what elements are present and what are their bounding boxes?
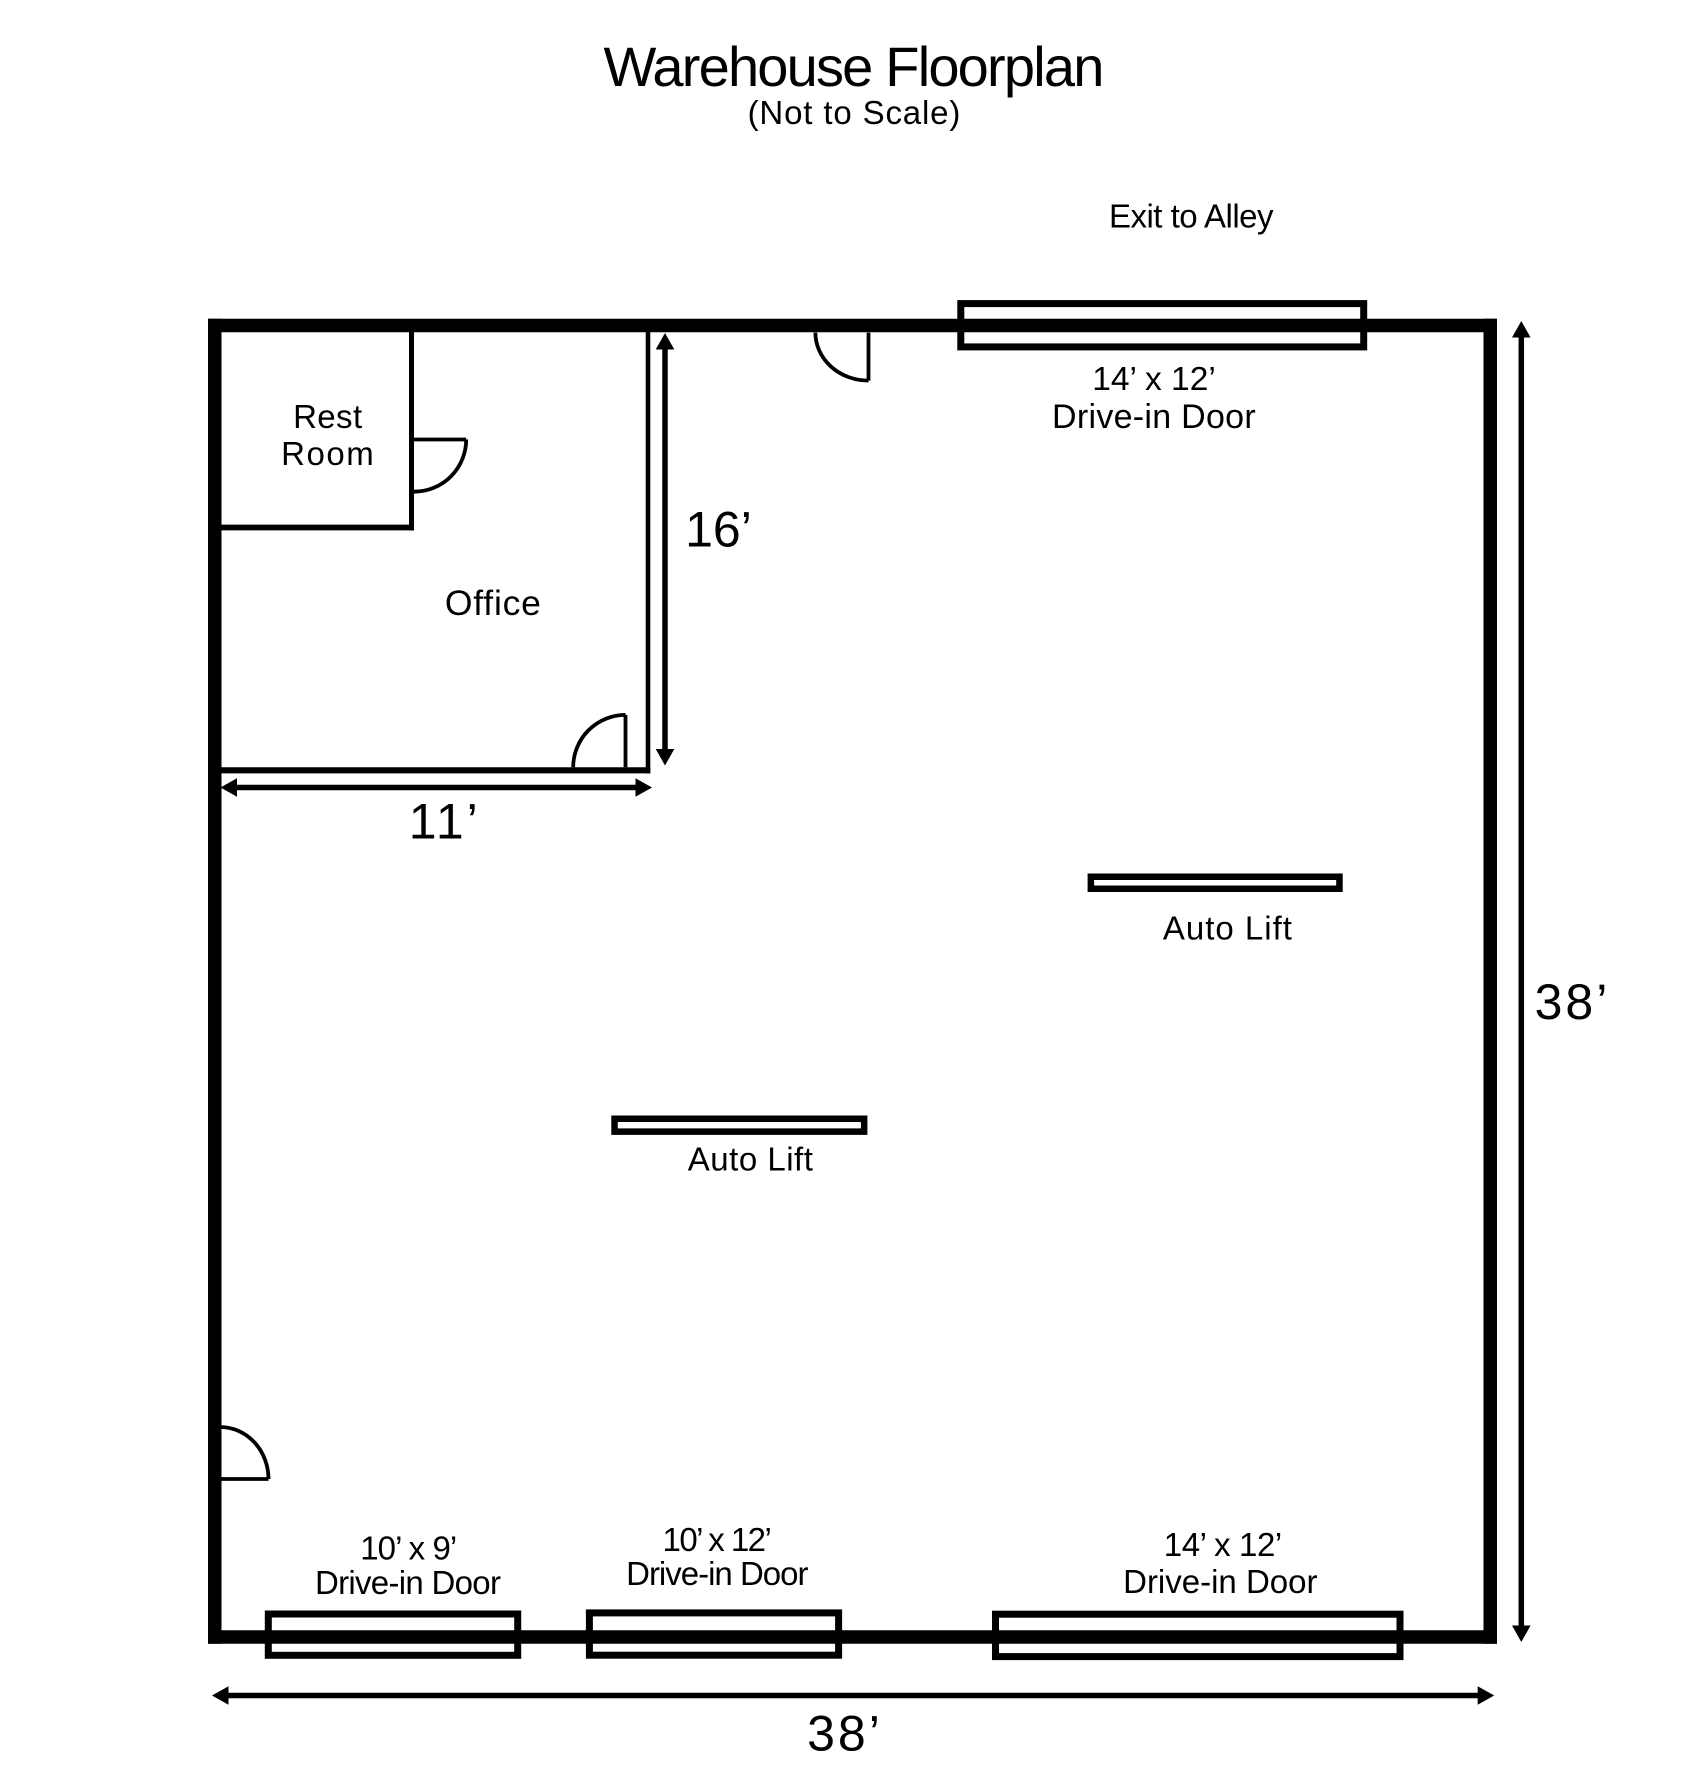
svg-text:Drive-in Door: Drive-in Door [315, 1564, 501, 1601]
svg-text:11’: 11’ [409, 793, 481, 849]
svg-text:Auto Lift: Auto Lift [1163, 909, 1293, 946]
svg-text:Auto Lift: Auto Lift [688, 1140, 814, 1177]
svg-text:16’: 16’ [685, 502, 752, 558]
svg-text:Room: Room [281, 435, 375, 472]
svg-text:Drive-in Door: Drive-in Door [1052, 398, 1256, 436]
svg-text:10’ x 9’: 10’ x 9’ [360, 1530, 456, 1567]
svg-text:(Not to Scale): (Not to Scale) [748, 94, 962, 131]
svg-text:Exit to Alley: Exit to Alley [1109, 197, 1274, 234]
svg-text:Drive-in Door: Drive-in Door [626, 1555, 808, 1592]
svg-text:14’ x 12’: 14’ x 12’ [1164, 1526, 1282, 1563]
svg-text:Drive-in Door: Drive-in Door [1123, 1563, 1317, 1600]
svg-text:Rest: Rest [293, 398, 362, 435]
svg-text:Warehouse Floorplan: Warehouse Floorplan [603, 35, 1102, 98]
svg-text:10’ x 12’: 10’ x 12’ [663, 1521, 771, 1558]
svg-text:14’ x 12’: 14’ x 12’ [1092, 361, 1216, 398]
svg-text:38’: 38’ [807, 1705, 883, 1761]
svg-text:Office: Office [445, 583, 542, 623]
svg-text:38’: 38’ [1535, 974, 1611, 1030]
